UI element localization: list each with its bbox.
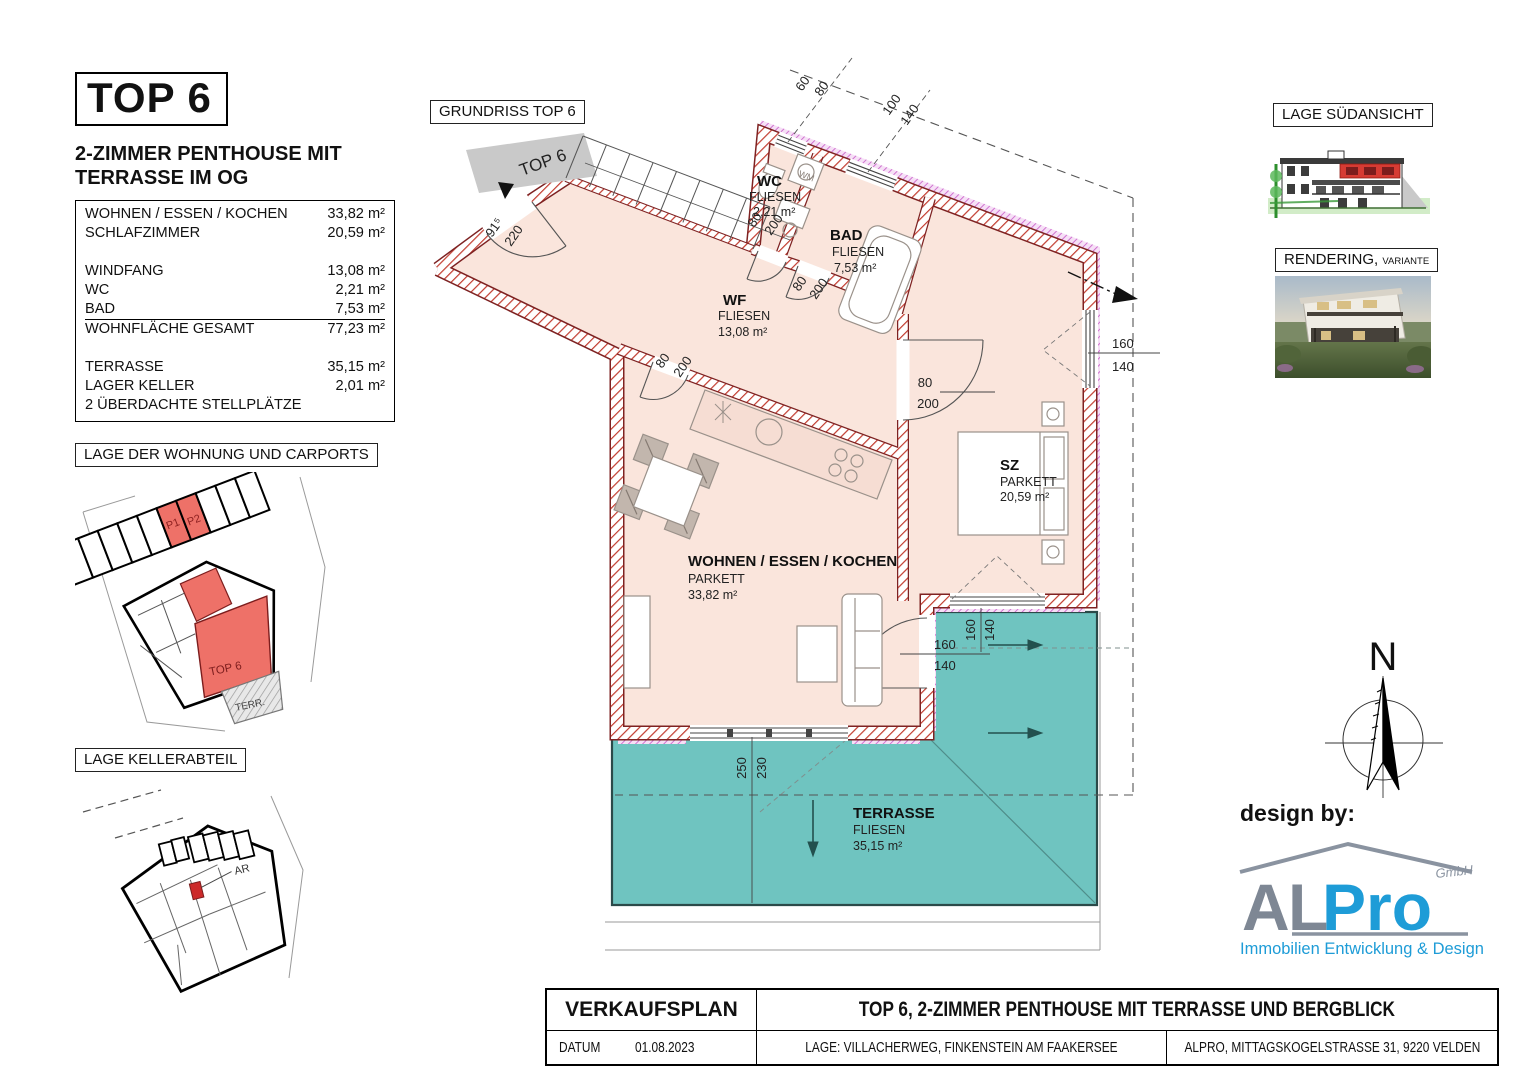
table-row: WC2,21 m² [85, 281, 385, 300]
svg-text:35,15 m²: 35,15 m² [853, 839, 902, 853]
north-compass: N [1325, 630, 1455, 800]
floor-plan: TOP 6 [420, 40, 1180, 980]
room-wohnen-name: WOHNEN / ESSEN / KOCHEN [688, 553, 897, 570]
svg-text:140: 140 [982, 619, 997, 641]
room-bad-name: BAD [830, 227, 863, 244]
north-label: N [1369, 635, 1398, 679]
elevation-balcony-slab [1312, 180, 1400, 185]
svg-text:7,53 m²: 7,53 m² [834, 261, 876, 275]
svg-text:FLIESEN: FLIESEN [853, 823, 905, 837]
keller-panel-title: LAGE KELLERABTEIL [75, 748, 246, 772]
alpro-logo: GmbH A L Pro Immobilien Entwicklung & De… [1236, 826, 1486, 961]
elevation-shadow [1402, 176, 1428, 208]
svg-text:33,82 m²: 33,82 m² [688, 588, 737, 602]
svg-text:140: 140 [934, 658, 956, 673]
svg-text:160: 160 [1112, 336, 1134, 351]
table-row-spacer [85, 243, 385, 262]
table-row: SCHLAFZIMMER20,59 m² [85, 224, 385, 243]
subtitle-line2: TERRASSE IM OG [75, 166, 342, 190]
svg-text:140: 140 [1112, 359, 1134, 374]
table-row: WOHNEN / ESSEN / KOCHEN33,82 m² [85, 205, 385, 224]
room-terrasse-name: TERRASSE [853, 805, 935, 822]
site-building: TOP 6 TERR. [118, 549, 299, 734]
room-wf-name: WF [723, 292, 746, 309]
table-row: LAGER KELLER2,01 m² [85, 377, 385, 396]
logo-a: A [1242, 870, 1290, 944]
logo-tagline: Immobilien Entwicklung & Design [1240, 940, 1484, 958]
compass-needle-icon [1367, 678, 1383, 790]
datum-value: 01.08.2023 [635, 1040, 695, 1056]
table-row-spacer [85, 339, 385, 358]
design-by-label: design by: [1240, 800, 1355, 827]
carports-panel-title: LAGE DER WOHNUNG UND CARPORTS [75, 443, 378, 467]
table-row: TERRASSE35,15 m² [85, 358, 385, 377]
rendering-variant-label: VARIANTE [1382, 256, 1429, 267]
keller-plan: AR [75, 778, 325, 1013]
rendering-panel-title: RENDERING, VARIANTE [1275, 248, 1438, 272]
titleblock-title: TOP 6, 2-ZIMMER PENTHOUSE MIT TERRASSE U… [757, 990, 1497, 1031]
titleblock-firma: ALPRO, MITTAGSKOGELSTRASSE 31, 9220 VELD… [1167, 1031, 1497, 1064]
svg-text:80: 80 [811, 78, 832, 98]
svg-text:160: 160 [934, 637, 956, 652]
svg-text:200: 200 [917, 396, 939, 411]
verkaufsplan-page: TOP 6 2-ZIMMER PENTHOUSE MIT TERRASSE IM… [0, 0, 1527, 1080]
room-sz-name: SZ [1000, 457, 1019, 474]
keller-building: AR [113, 812, 300, 999]
titleblock-datum: DATUM 01.08.2023 [547, 1031, 757, 1064]
subtitle-line1: 2-ZIMMER PENTHOUSE MIT [75, 142, 342, 166]
suedansicht-panel-title: LAGE SÜDANSICHT [1273, 103, 1433, 127]
carport-row: P1 P2 [75, 472, 270, 593]
svg-text:160: 160 [963, 619, 978, 641]
datum-label: DATUM [559, 1040, 600, 1056]
table-row-total: WOHNFLÄCHE GESAMT77,23 m² [85, 320, 385, 339]
svg-text:80: 80 [918, 375, 932, 390]
svg-text:PARKETT: PARKETT [1000, 475, 1057, 489]
svg-text:FLIESEN: FLIESEN [718, 309, 770, 323]
rendering-title: RENDERING, [1284, 251, 1378, 268]
logo-gmbh: GmbH [1435, 862, 1475, 881]
svg-text:FLIESEN: FLIESEN [832, 245, 884, 259]
area-table: WOHNEN / ESSEN / KOCHEN33,82 m² SCHLAFZI… [75, 200, 395, 422]
top6-title-box: TOP 6 [75, 72, 228, 126]
svg-text:PARKETT: PARKETT [688, 572, 745, 586]
entry-arrow-icon [498, 182, 514, 199]
rendering-image [1275, 276, 1431, 378]
site-plan-carports: P1 P2 TOP 6 TERR. [75, 472, 340, 734]
table-row: 2 ÜBERDACHTE STELLPLÄTZE [85, 396, 385, 415]
table-row: WINDFANG13,08 m² [85, 262, 385, 281]
titleblock-lage: LAGE: VILLACHERWEG, FINKENSTEIN AM FAAKE… [757, 1031, 1167, 1064]
table-row: BAD7,53 m² [85, 300, 385, 320]
room-wc-name: WC [757, 173, 782, 190]
apartment-subtitle: 2-ZIMMER PENTHOUSE MIT TERRASSE IM OG [75, 142, 342, 190]
svg-text:60: 60 [792, 73, 813, 93]
south-elevation [1268, 146, 1430, 230]
svg-text:20,59 m²: 20,59 m² [1000, 490, 1049, 504]
keller-dashed-lines [83, 790, 183, 838]
title-block: VERKAUFSPLAN TOP 6, 2-ZIMMER PENTHOUSE M… [545, 988, 1499, 1066]
elevation-stair-tower [1328, 151, 1344, 159]
titleblock-doc-type: VERKAUFSPLAN [547, 990, 757, 1031]
svg-text:250: 250 [734, 757, 749, 779]
svg-text:230: 230 [754, 757, 769, 779]
svg-text:13,08 m²: 13,08 m² [718, 325, 767, 339]
svg-text:FLIESEN: FLIESEN [749, 190, 801, 204]
